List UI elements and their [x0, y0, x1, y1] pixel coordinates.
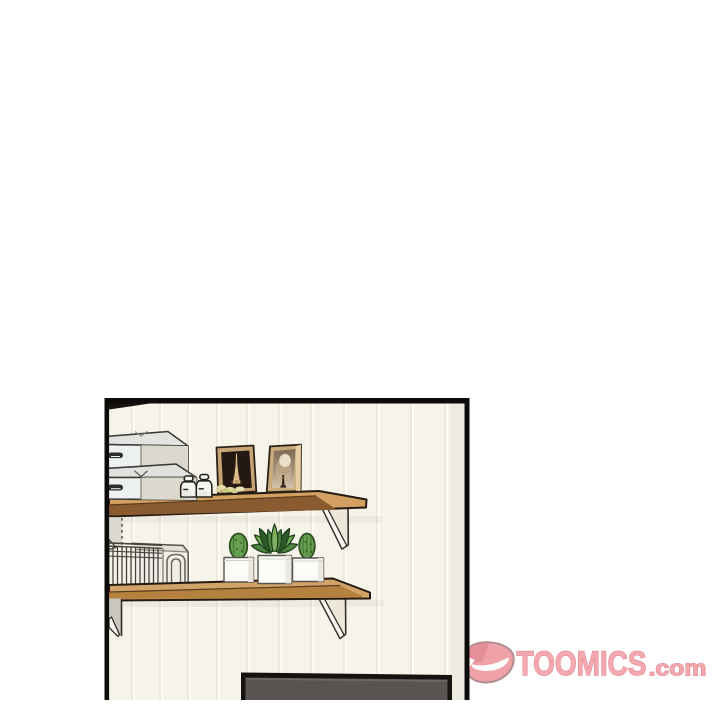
svg-text:.com: .com [649, 656, 707, 681]
svg-text:TOOMICS: TOOMICS [517, 645, 647, 683]
